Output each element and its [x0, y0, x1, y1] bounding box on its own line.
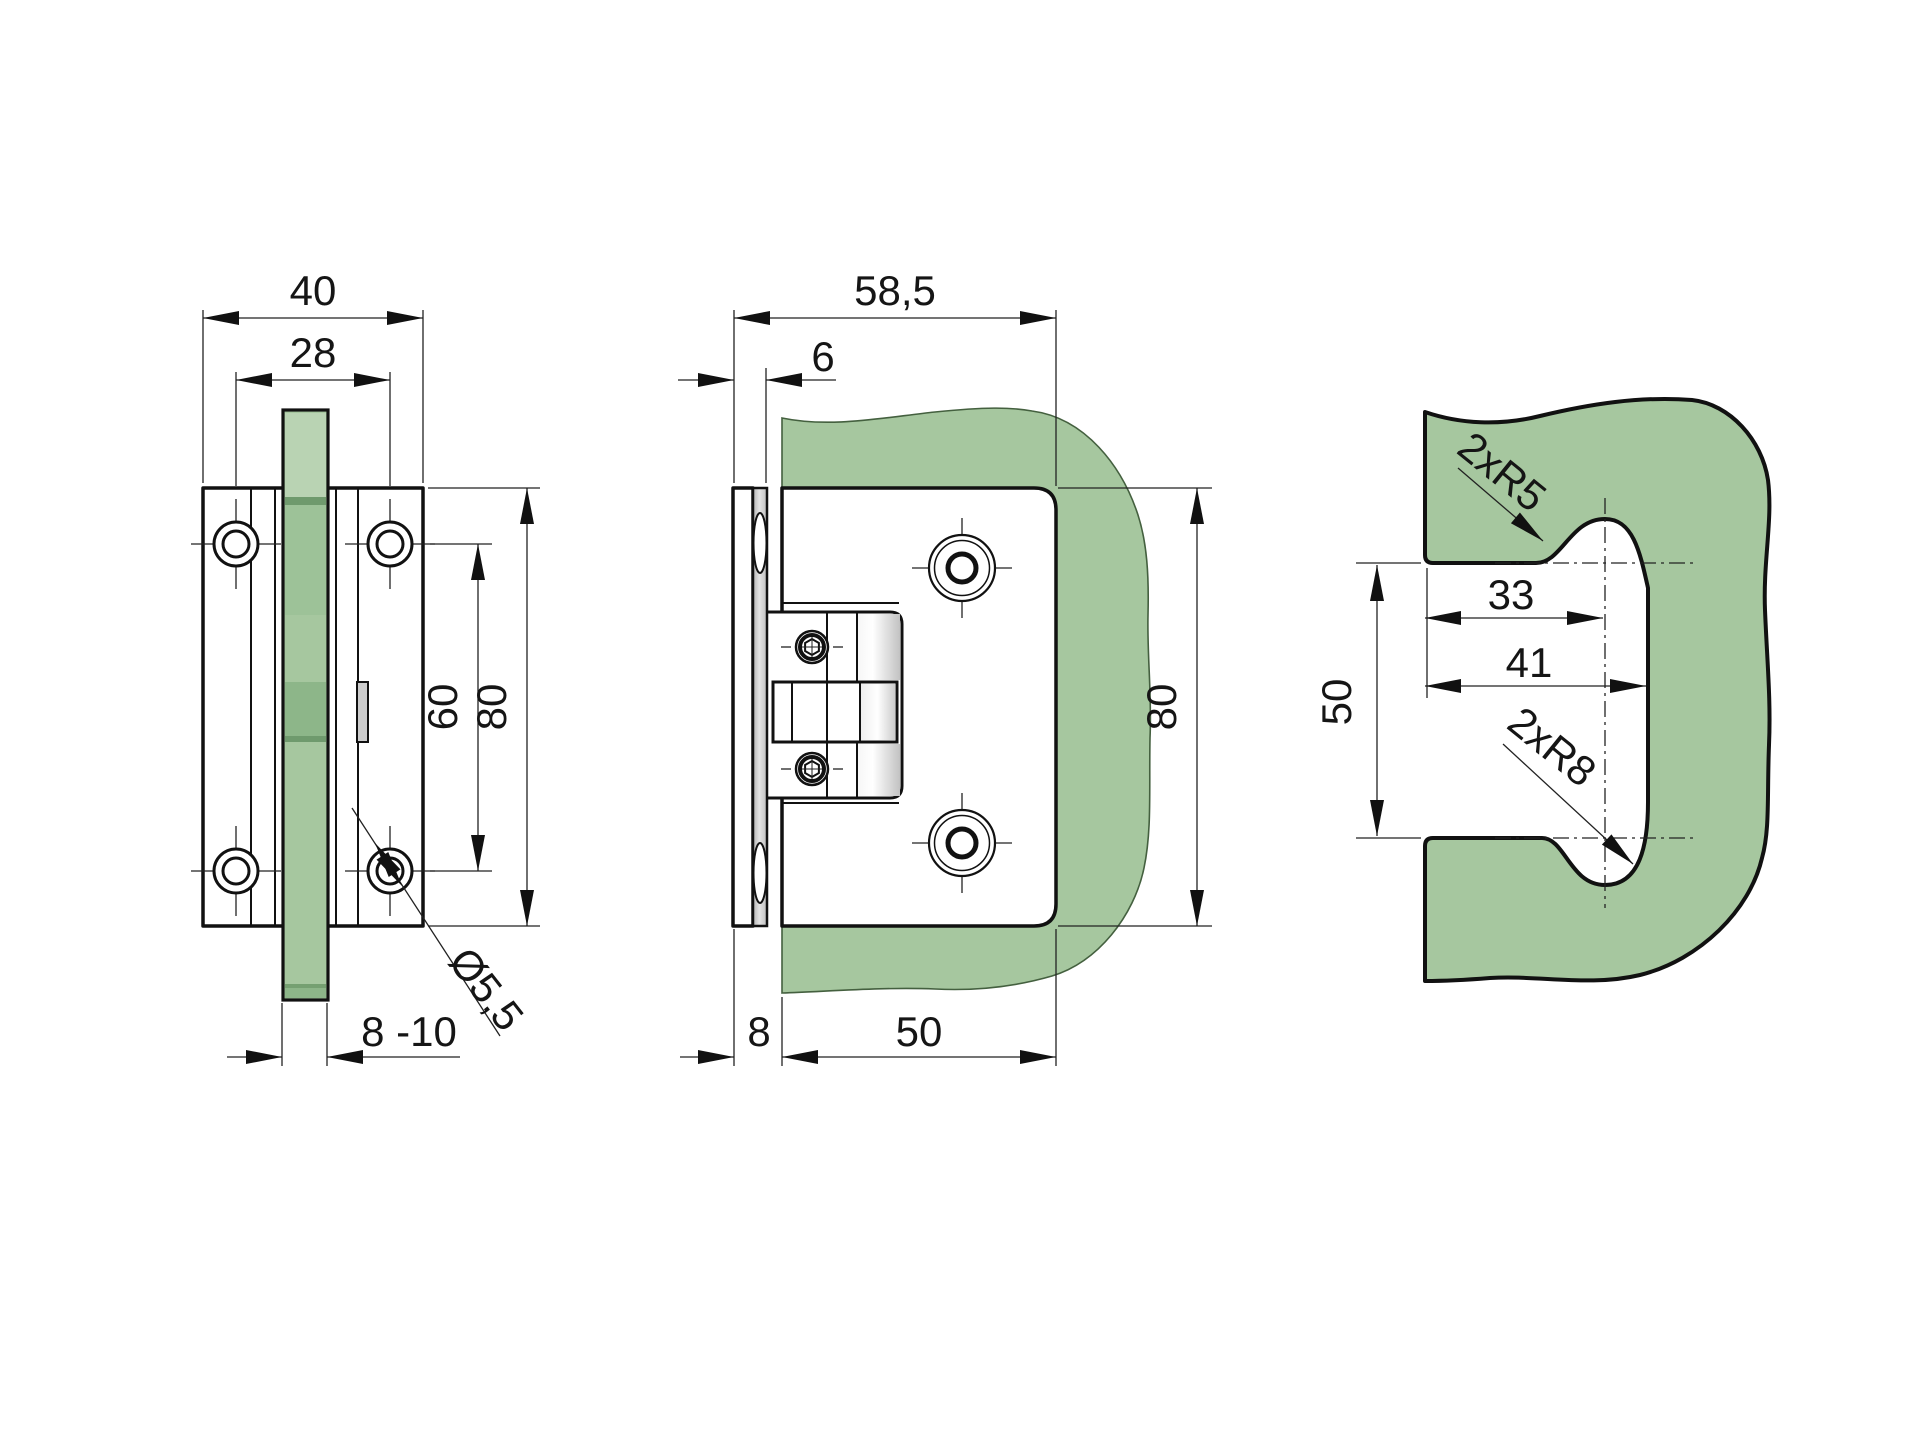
- dim-front-glass-thickness: 8 -10: [227, 1003, 460, 1066]
- dim-arrow: [471, 544, 485, 580]
- dim-label-6: 6: [811, 333, 834, 380]
- dim-arrow: [520, 890, 534, 926]
- cutout-glass-panel: [1425, 399, 1770, 981]
- dim-arrow: [327, 1050, 363, 1064]
- wall-plate-slot: [754, 843, 767, 903]
- dim-label-80: 80: [468, 684, 515, 731]
- dim-arrow: [698, 373, 734, 387]
- dim-arrow: [1020, 311, 1056, 325]
- dim-arrow: [203, 311, 239, 325]
- knuckle-cylinder-shading: [858, 614, 900, 680]
- glass-strip-edge: [285, 736, 326, 742]
- dim-label-2xR8: 2xR8: [1499, 697, 1605, 795]
- dim-arrow: [1610, 679, 1646, 693]
- dim-arrow: [1425, 611, 1461, 625]
- glass-strip-shade: [285, 505, 326, 615]
- dim-arrow: [1370, 565, 1384, 601]
- glass-strip-edge: [285, 984, 326, 988]
- dim-label-28: 28: [290, 329, 337, 376]
- dim-label-41: 41: [1506, 639, 1553, 686]
- dim-label-58-5: 58,5: [854, 267, 936, 314]
- front-barrel-edge: [357, 682, 368, 742]
- knuckle-cylinder-shading: [858, 744, 900, 796]
- dim-arrow: [354, 373, 390, 387]
- dim-label-33: 33: [1488, 571, 1535, 618]
- glass-strip-edge: [285, 497, 326, 505]
- dim-arrow: [236, 373, 272, 387]
- glass-strip-band: [285, 682, 326, 740]
- dim-arrow: [766, 373, 802, 387]
- dim-arrow: [520, 488, 534, 524]
- dim-label-50-side: 50: [896, 1008, 943, 1055]
- hinge-technical-drawing: 40 28 60 80: [0, 0, 1920, 1439]
- dim-label-40: 40: [290, 267, 337, 314]
- side-view: 58,5 6 80 8 50: [678, 267, 1212, 1066]
- dim-arrow: [782, 1050, 818, 1064]
- dim-label-50-cutout: 50: [1313, 679, 1360, 726]
- dim-arrow: [734, 311, 770, 325]
- dim-arrow: [698, 1050, 734, 1064]
- dim-arrow: [1425, 679, 1461, 693]
- dim-arrow: [471, 835, 485, 871]
- dim-label-60: 60: [419, 684, 466, 731]
- dim-cutout-height: 50: [1313, 563, 1421, 838]
- dim-label-8: 8: [747, 1008, 770, 1055]
- wall-plate-slot: [754, 513, 767, 573]
- dim-arrow: [246, 1050, 282, 1064]
- dim-arrow: [1020, 1050, 1056, 1064]
- dim-arrow: [1370, 800, 1384, 836]
- dim-cutout-width: 41: [1425, 639, 1646, 693]
- dim-arrow: [1190, 488, 1204, 524]
- dim-arrow: [1190, 890, 1204, 926]
- dim-arrow: [387, 311, 423, 325]
- barrel-cylinder-shading: [860, 684, 895, 740]
- cutout-view: 2xR5 2xR8 33 41 50: [1313, 399, 1770, 981]
- dim-arrow: [1567, 611, 1603, 625]
- drawing-canvas: 40 28 60 80: [0, 0, 1920, 1439]
- front-view: 40 28 60 80: [191, 267, 540, 1066]
- glass-strip-highlight: [285, 413, 326, 497]
- side-knuckle: [765, 612, 902, 798]
- dim-label-8-10: 8 -10: [361, 1008, 457, 1055]
- side-wall-plate: [733, 488, 753, 926]
- front-glass-strip: [283, 410, 328, 1000]
- dim-label-80-side: 80: [1138, 684, 1185, 731]
